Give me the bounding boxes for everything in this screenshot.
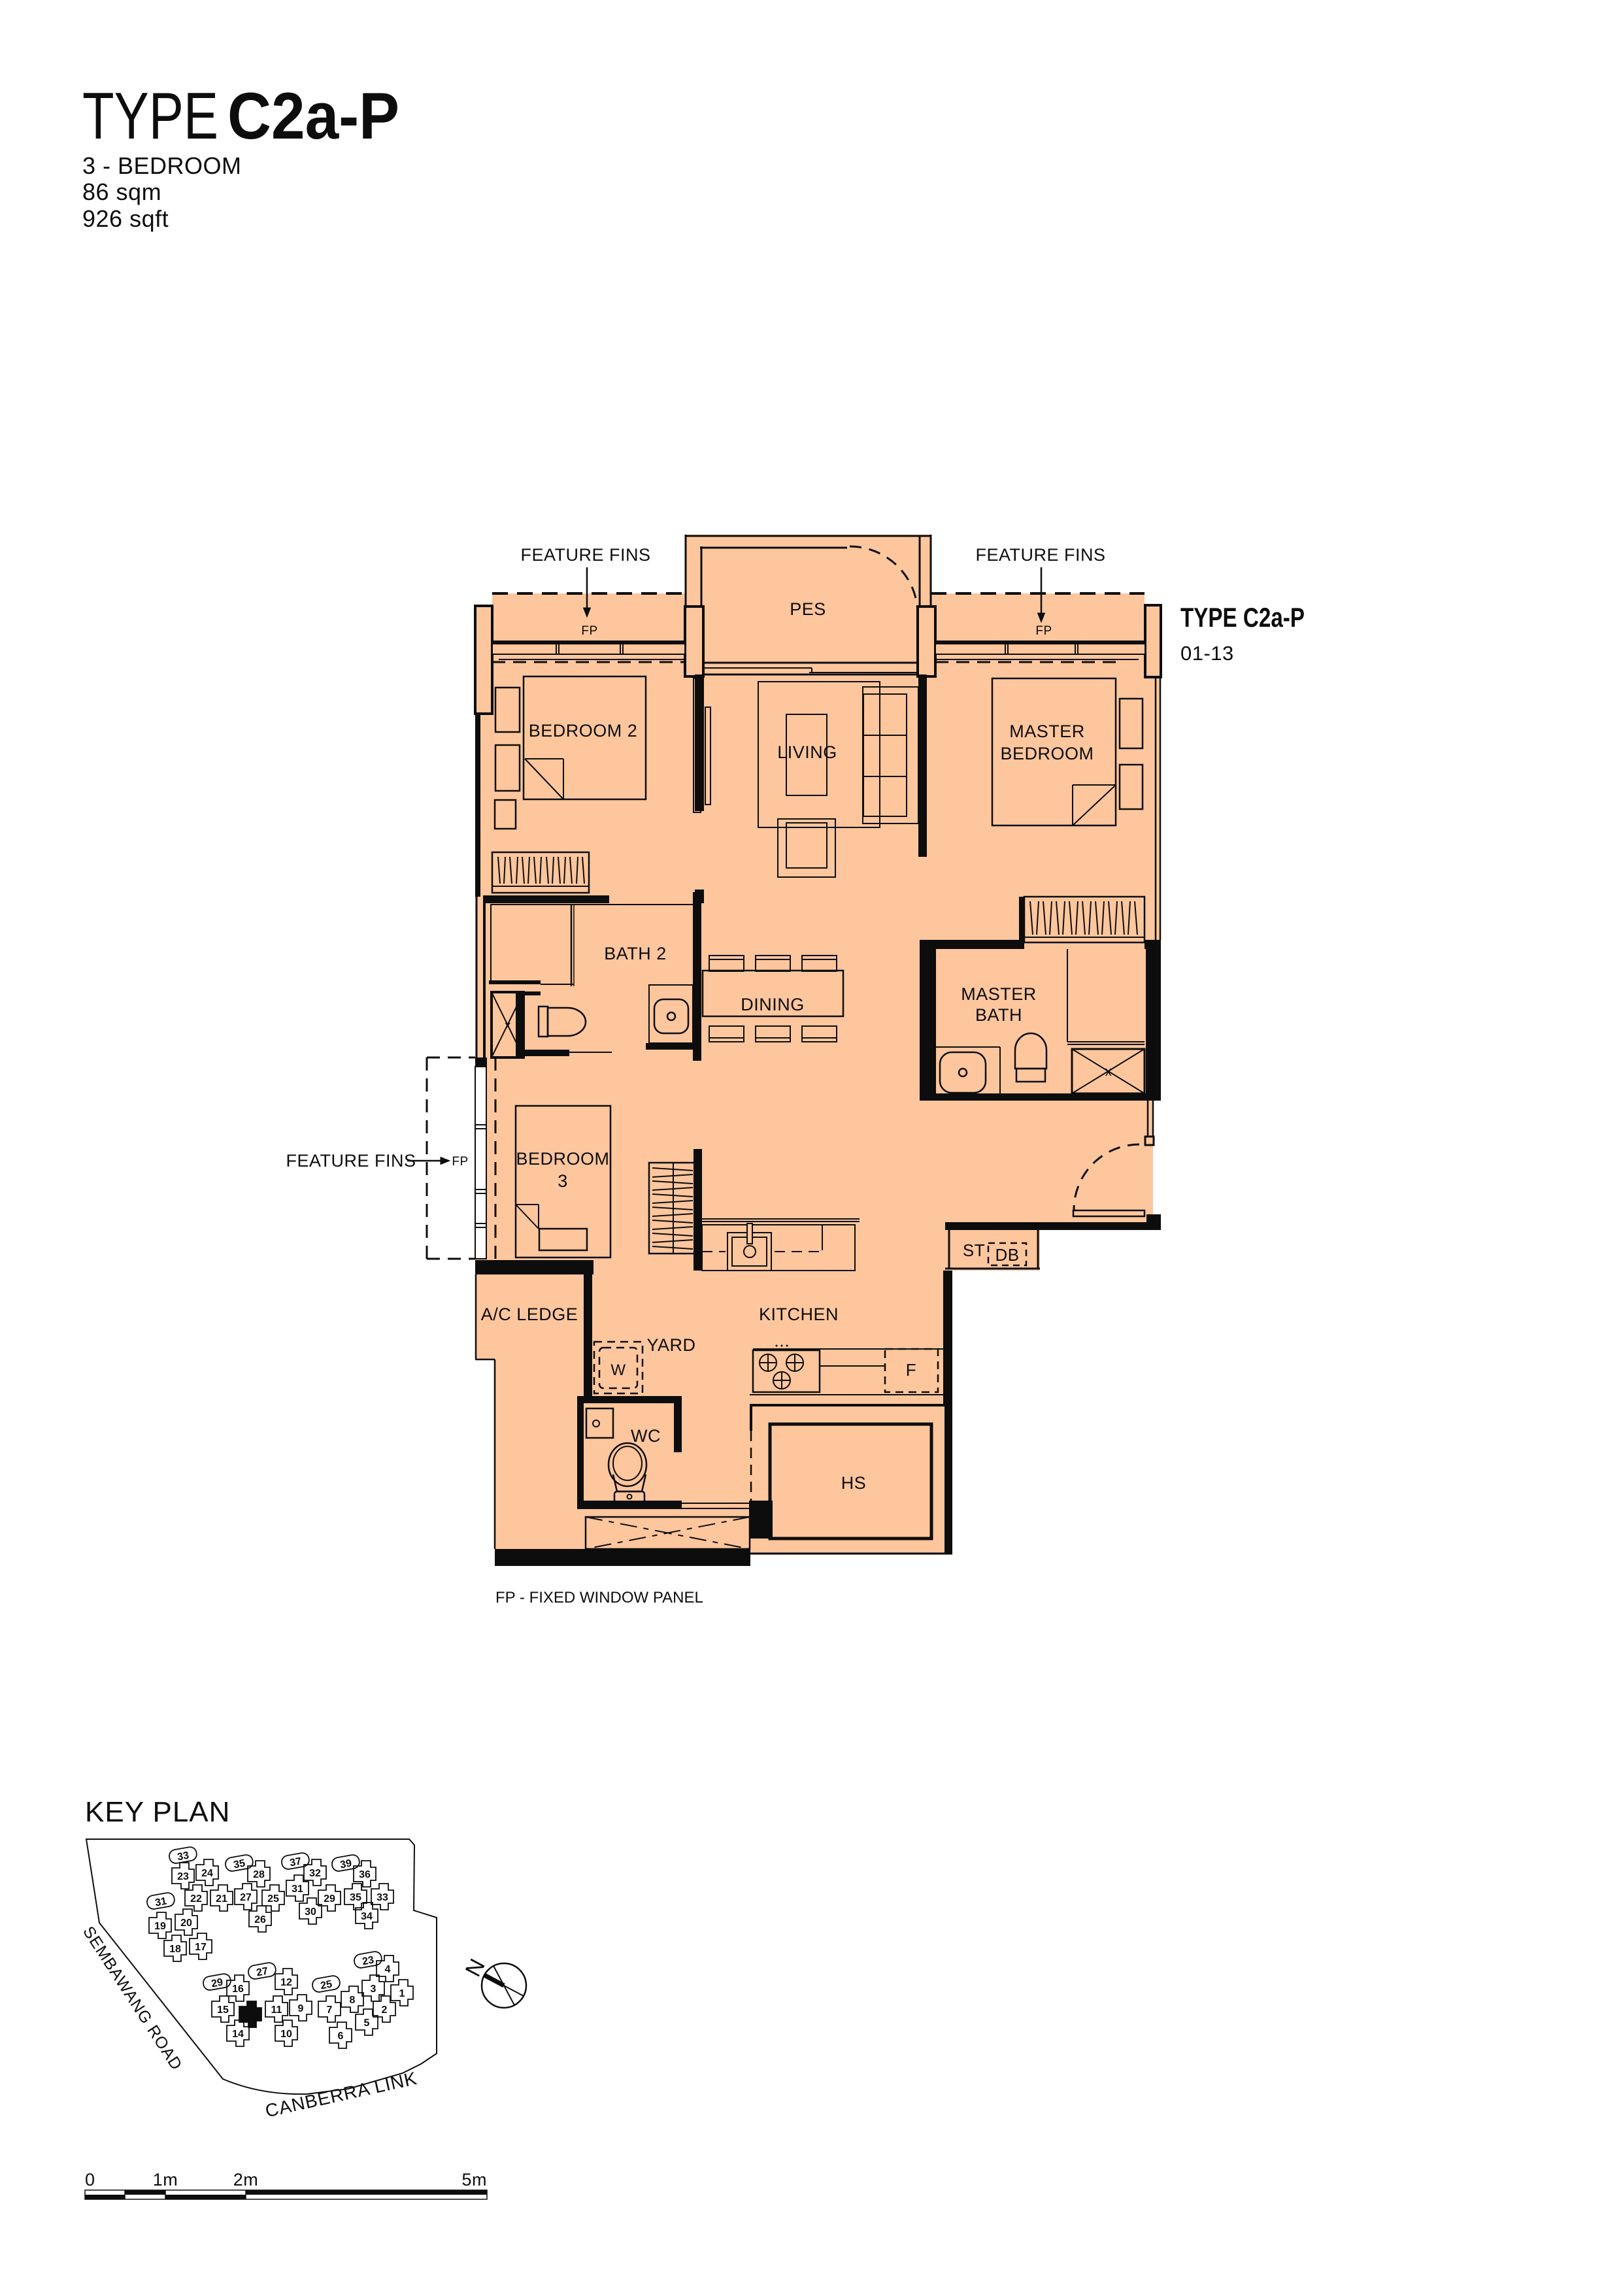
svg-text:01-13: 01-13	[1180, 642, 1234, 665]
svg-text:3: 3	[558, 1171, 568, 1191]
svg-text:MASTER: MASTER	[1009, 722, 1085, 741]
svg-text:0: 0	[85, 2170, 95, 2189]
svg-text:29: 29	[210, 1977, 224, 1990]
svg-text:FEATURE FINS: FEATURE FINS	[286, 1151, 416, 1171]
svg-text:A/C LEDGE: A/C LEDGE	[481, 1305, 578, 1324]
svg-text:29: 29	[324, 1893, 335, 1905]
svg-text:BATH 2: BATH 2	[604, 944, 667, 963]
svg-text:x: x	[1105, 1065, 1112, 1079]
svg-text:1: 1	[399, 1988, 405, 1999]
svg-text:22: 22	[190, 1893, 202, 1905]
svg-text:BEDROOM 2: BEDROOM 2	[529, 721, 638, 740]
svg-text:23: 23	[361, 1955, 375, 1968]
svg-text:34: 34	[361, 1911, 373, 1922]
svg-text:15: 15	[217, 2005, 229, 2016]
svg-text:TYPE C2a-P: TYPE C2a-P	[1180, 602, 1305, 633]
svg-text:W: W	[610, 1361, 626, 1379]
svg-text:YARD: YARD	[646, 1335, 695, 1355]
svg-text:31: 31	[154, 1896, 168, 1909]
svg-text:HS: HS	[841, 1473, 867, 1493]
svg-text:DINING: DINING	[741, 995, 805, 1014]
svg-text:5m: 5m	[461, 2170, 487, 2189]
svg-text:KEY PLAN: KEY PLAN	[85, 1796, 230, 1828]
svg-text:25: 25	[267, 1893, 279, 1905]
svg-text:12: 12	[280, 1977, 292, 1988]
svg-text:30: 30	[305, 1906, 316, 1918]
svg-text:2m: 2m	[233, 2170, 259, 2189]
svg-text:2: 2	[382, 2005, 388, 2016]
svg-text:FP - FIXED WINDOW PANEL: FP - FIXED WINDOW PANEL	[495, 1589, 703, 1606]
svg-text:FP: FP	[1035, 624, 1052, 638]
svg-text:LIVING: LIVING	[777, 742, 837, 762]
svg-text:DB: DB	[995, 1245, 1019, 1265]
svg-text:7: 7	[327, 2005, 333, 2016]
svg-text:86 sqm: 86 sqm	[82, 178, 161, 205]
svg-text:FEATURE FINS: FEATURE FINS	[975, 545, 1105, 565]
svg-text:18: 18	[169, 1944, 181, 1955]
svg-text:926 sqft: 926 sqft	[82, 205, 169, 232]
svg-text:26: 26	[254, 1914, 266, 1925]
svg-text:x: x	[505, 1019, 511, 1032]
svg-text:35: 35	[233, 1858, 246, 1871]
svg-text:FP: FP	[452, 1155, 468, 1169]
svg-text:27: 27	[240, 1892, 252, 1903]
svg-text:33: 33	[176, 1850, 190, 1863]
svg-text:FP: FP	[581, 624, 597, 638]
svg-text:WC: WC	[631, 1426, 661, 1446]
svg-text:BEDROOM: BEDROOM	[1000, 744, 1094, 763]
svg-text:3 - BEDROOM: 3 - BEDROOM	[82, 152, 242, 179]
svg-text:23: 23	[177, 1871, 189, 1882]
svg-text:32: 32	[309, 1868, 321, 1879]
svg-text:14: 14	[232, 2029, 244, 2040]
svg-text:10: 10	[280, 2029, 292, 2040]
svg-text:BATH: BATH	[975, 1005, 1022, 1025]
svg-text:24: 24	[201, 1868, 213, 1879]
svg-text:17: 17	[195, 1942, 207, 1953]
svg-text:8: 8	[350, 1995, 356, 2006]
svg-text:6: 6	[338, 2031, 344, 2042]
svg-text:19: 19	[154, 1921, 166, 1932]
svg-text:27: 27	[256, 1966, 269, 1979]
svg-text:3: 3	[371, 1984, 376, 1995]
svg-text:4: 4	[385, 1964, 391, 1975]
svg-text:39: 39	[339, 1858, 353, 1871]
svg-text:20: 20	[180, 1918, 192, 1929]
svg-text:9: 9	[298, 2003, 304, 2014]
svg-text:PES: PES	[790, 599, 826, 619]
svg-text:ST: ST	[963, 1240, 985, 1260]
svg-text:37: 37	[289, 1856, 303, 1869]
svg-text:F: F	[906, 1360, 916, 1380]
svg-text:FEATURE FINS: FEATURE FINS	[520, 545, 650, 565]
svg-text:11: 11	[271, 2005, 282, 2016]
svg-text:21: 21	[216, 1893, 227, 1905]
svg-text:33: 33	[376, 1892, 388, 1903]
svg-text:1m: 1m	[153, 2170, 178, 2189]
svg-text:36: 36	[359, 1869, 371, 1880]
svg-text:25: 25	[320, 1979, 333, 1992]
svg-text:TYPEC2a-P: TYPEC2a-P	[82, 80, 399, 153]
svg-text:BEDROOM: BEDROOM	[516, 1149, 609, 1169]
svg-text:16: 16	[232, 1984, 244, 1995]
svg-text:35: 35	[350, 1892, 361, 1903]
svg-text:KITCHEN: KITCHEN	[759, 1305, 839, 1324]
svg-text:31: 31	[292, 1884, 303, 1895]
svg-text:28: 28	[253, 1869, 265, 1880]
svg-text:5: 5	[364, 2018, 370, 2029]
svg-text:MASTER: MASTER	[961, 984, 1037, 1004]
